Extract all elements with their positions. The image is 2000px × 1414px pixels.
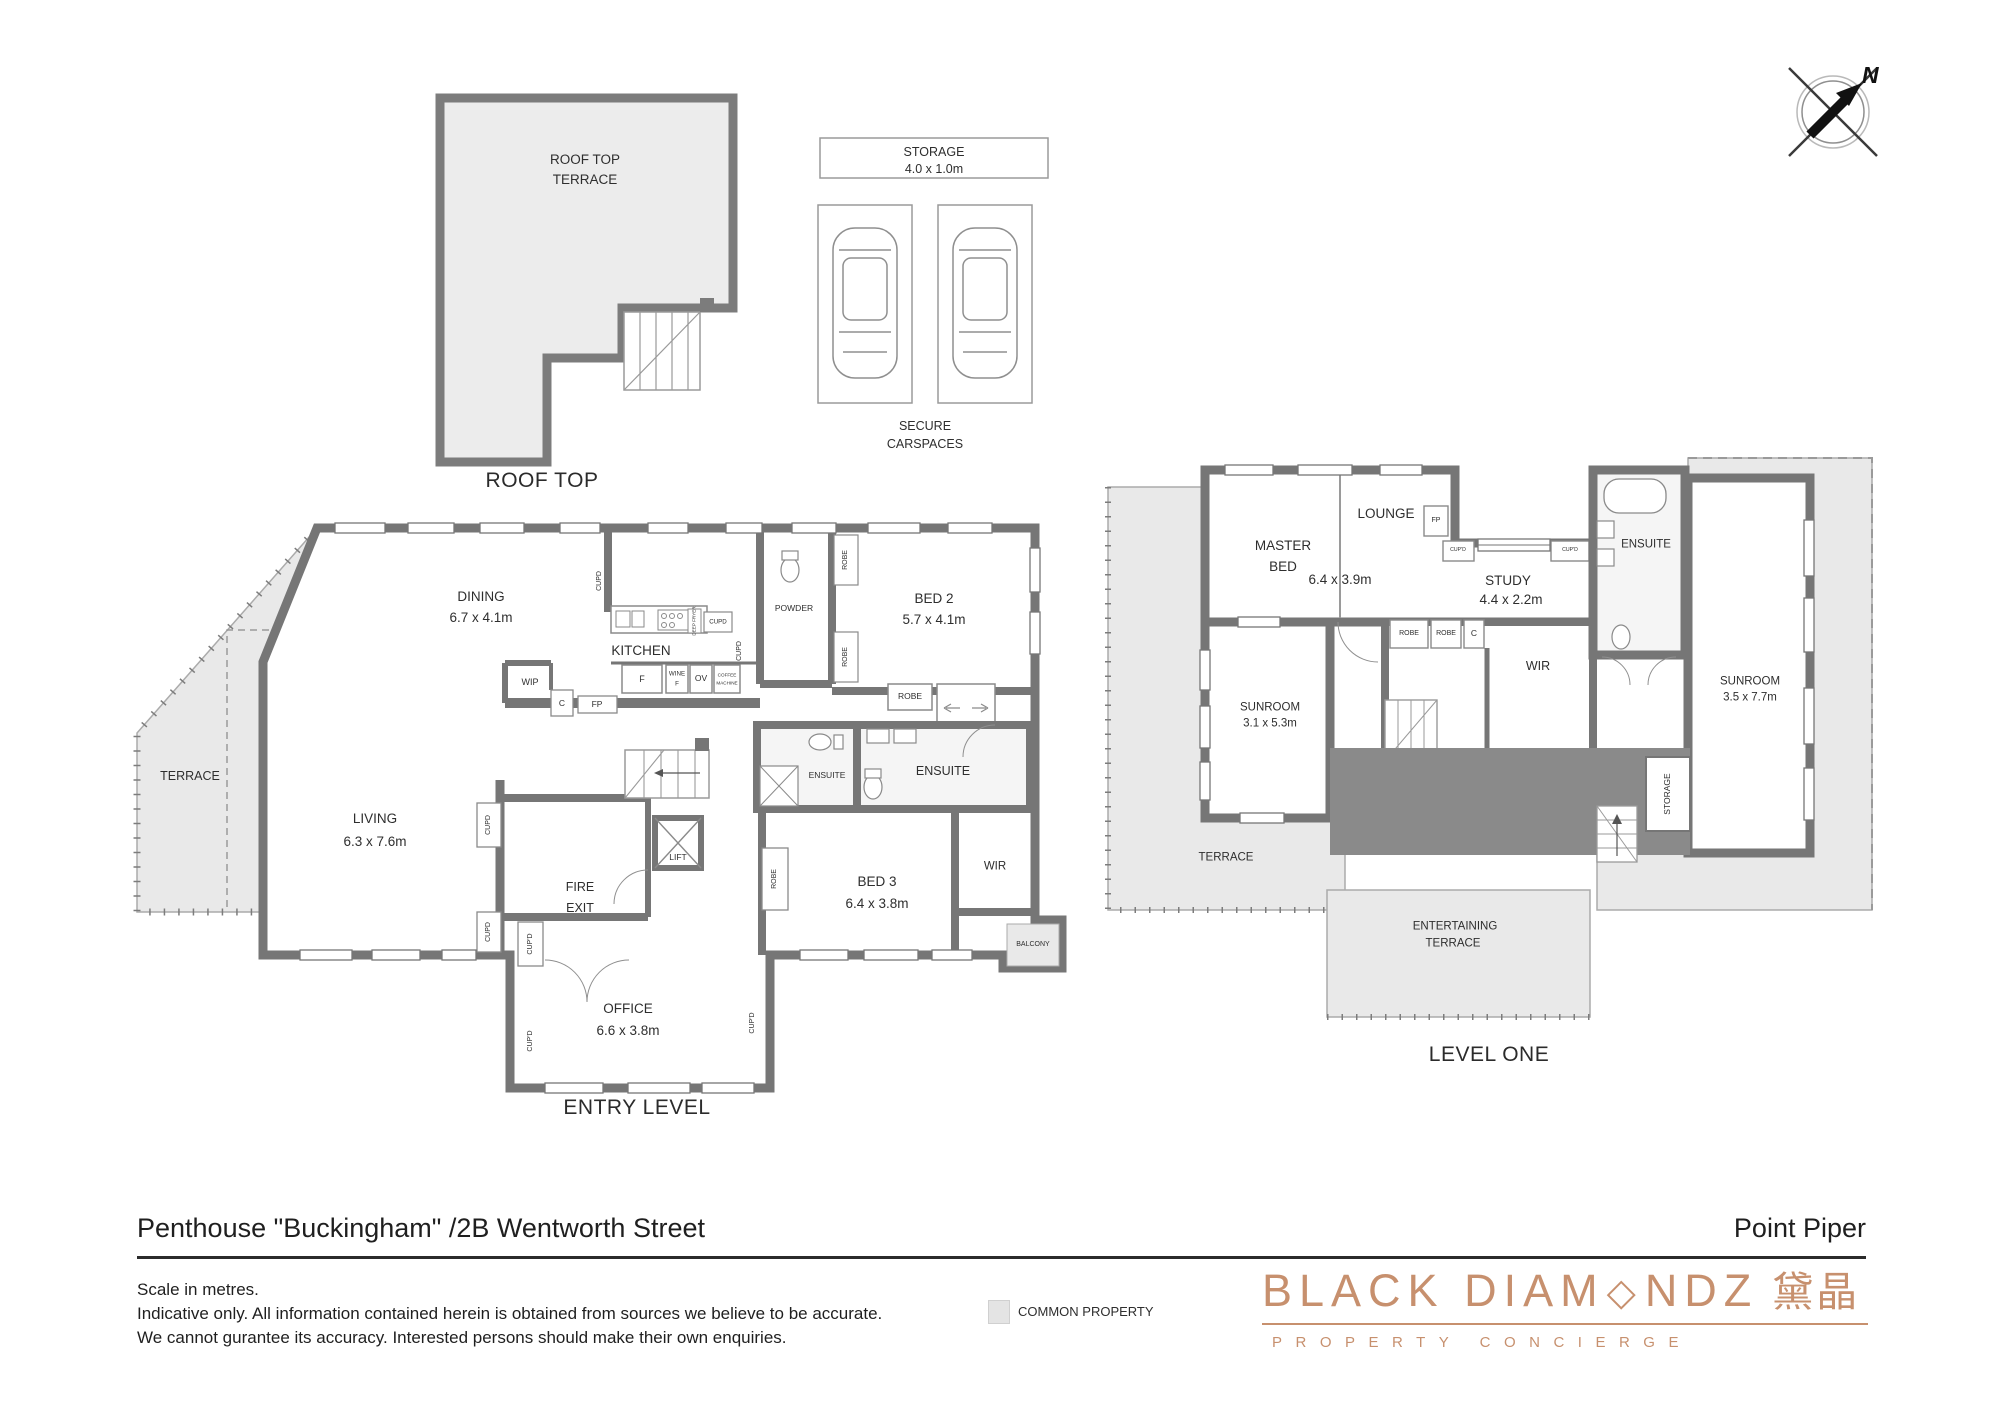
room-master-bed: BED [1269, 559, 1297, 575]
room-dining: DINING [457, 589, 504, 605]
room-master-dims: 6.4 x 3.9m [1308, 572, 1371, 588]
room-ensuite-main: ENSUITE [916, 764, 970, 778]
room-wir-entry: WIR [984, 860, 1006, 873]
rooftop-terrace-label: ROOF TOP [550, 152, 620, 168]
room-dining-dims: 6.7 x 4.1m [449, 610, 512, 626]
robe-label: ROBE [842, 647, 850, 667]
room-bed2: BED 2 [914, 591, 953, 607]
logo-chinese-text: 黛晶 [1772, 1258, 1860, 1318]
room-sunroom1: SUNROOM [1240, 701, 1300, 714]
fixture-fireplace-l1: FP [1432, 517, 1441, 525]
robe-label: ROBE [1399, 630, 1419, 638]
lift-label: LIFT [669, 853, 686, 863]
compass-north-label: N [1862, 62, 1879, 89]
room-master-bed: MASTER [1255, 538, 1311, 554]
room-entertaining-terrace: ENTERTAINING [1413, 920, 1498, 933]
room-bed3: BED 3 [857, 874, 896, 890]
fixture-deep-fryer: DEEP FRYER [691, 606, 696, 635]
room-terrace-entry: TERRACE [160, 769, 220, 783]
fixture-coffee-machine: MACHINE [716, 680, 737, 685]
disclaimer-line: We cannot gurantee its accuracy. Interes… [137, 1326, 882, 1350]
cupboard-label: CUP'D [527, 1030, 535, 1051]
level-one-caption: LEVEL ONE [1429, 1043, 1549, 1067]
cupboard-label: CUP'D [749, 1012, 757, 1033]
common-property-swatch [988, 1300, 1010, 1324]
room-terrace-l1: TERRACE [1199, 851, 1254, 864]
room-ensuite-small: ENSUITE [809, 771, 846, 781]
fixture-wine-fridge: F [675, 680, 679, 687]
entry-level-caption: ENTRY LEVEL [563, 1096, 710, 1120]
room-bed3-dims: 6.4 x 3.8m [845, 896, 908, 912]
fixture-fireplace: FP [592, 700, 603, 710]
storage-l1-label: STORAGE [1663, 773, 1673, 814]
logo-divider [1262, 1323, 1868, 1325]
room-fire-exit: EXIT [566, 901, 594, 915]
car-icon [953, 228, 1017, 378]
cupboard-label: CUP'D [1562, 548, 1578, 554]
cupboard-label: CUPD [485, 815, 493, 835]
suburb-label: Point Piper [1734, 1213, 1866, 1244]
room-entertaining-terrace: TERRACE [1426, 937, 1481, 950]
diamond-icon: ◇ [1607, 1270, 1643, 1315]
room-balcony: BALCONY [1016, 941, 1049, 949]
room-ensuite-l1: ENSUITE [1621, 538, 1671, 551]
room-office: OFFICE [603, 1001, 653, 1017]
disclaimer-line: Indicative only. All information contain… [137, 1302, 882, 1326]
rooftop-caption: ROOF TOP [486, 469, 599, 493]
room-wir-l1: WIR [1526, 659, 1550, 673]
robe-label: ROBE [771, 869, 779, 889]
agency-logo: BLACK DIAM◇NDZ 黛晶 PROPERTY CONCIERGE [1262, 1258, 1868, 1351]
cupboard-label: CUPD [736, 641, 744, 661]
floorplan-linework [0, 0, 2000, 1414]
room-kitchen: KITCHEN [611, 643, 670, 659]
cupboard-label: CUP'D [527, 933, 535, 954]
cupboard-label: CUPD [709, 618, 727, 625]
room-fire-exit: FIRE [566, 880, 594, 894]
closet-label: C [1471, 629, 1477, 639]
fixture-fridge: F [639, 674, 645, 684]
carspaces-caption: SECURE [899, 419, 951, 433]
room-sunroom2: SUNROOM [1720, 675, 1780, 688]
room-living-dims: 6.3 x 7.6m [343, 834, 406, 850]
room-sunroom1-dims: 3.1 x 5.3m [1243, 717, 1297, 730]
cupboard-label: CUPD [485, 922, 493, 942]
logo-text: BLACK DIAM [1262, 1265, 1605, 1317]
room-living: LIVING [353, 811, 397, 827]
fixture-wine-fridge: WINE [669, 670, 685, 677]
storage-label: STORAGE [904, 145, 965, 159]
car-icon [833, 228, 897, 378]
page-title: Penthouse "Buckingham" /2B Wentworth Str… [137, 1213, 705, 1244]
room-bed2-dims: 5.7 x 4.1m [902, 612, 965, 628]
fixture-wip: WIP [522, 677, 539, 687]
logo-tagline: PROPERTY CONCIERGE [1262, 1334, 1868, 1351]
terrace-stairs-icon [1597, 806, 1637, 862]
entry-level-plan [137, 523, 1062, 1093]
room-study-dims: 4.4 x 2.2m [1479, 592, 1542, 608]
common-property-label: COMMON PROPERTY [1018, 1304, 1154, 1319]
disclaimer-text: Scale in metres. Indicative only. All in… [137, 1278, 882, 1350]
robe-label: ROBE [842, 550, 850, 570]
carspaces-caption: CARSPACES [887, 437, 963, 451]
agency-logo-wordmark: BLACK DIAM◇NDZ 黛晶 [1262, 1258, 1868, 1318]
room-study: STUDY [1485, 573, 1531, 589]
logo-text: NDZ [1645, 1265, 1758, 1317]
robe-label: ROBE [898, 692, 922, 702]
rooftop-terrace-label: TERRACE [553, 172, 618, 188]
cupboard-label: CUP'D [1450, 548, 1466, 554]
fixture-coffee-machine: COFFEE [718, 672, 737, 677]
room-office-dims: 6.6 x 3.8m [596, 1023, 659, 1039]
room-powder: POWDER [775, 604, 813, 614]
fixture-cooktop-c: C [559, 699, 565, 709]
fixture-oven: OV [695, 674, 707, 684]
robe-label: ROBE [1436, 630, 1456, 638]
disclaimer-line: Scale in metres. [137, 1278, 882, 1302]
room-sunroom2-dims: 3.5 x 7.7m [1723, 691, 1777, 704]
room-lounge: LOUNGE [1357, 506, 1414, 522]
cupboard-label: CUPD [596, 571, 604, 591]
parking-plan [818, 138, 1048, 403]
storage-dims: 4.0 x 1.0m [905, 162, 963, 176]
rooftop-stairs-icon [624, 298, 714, 390]
floorplan-page: ROOF TOP TERRACE ROOF TOP STORAGE 4.0 x … [0, 0, 2000, 1414]
